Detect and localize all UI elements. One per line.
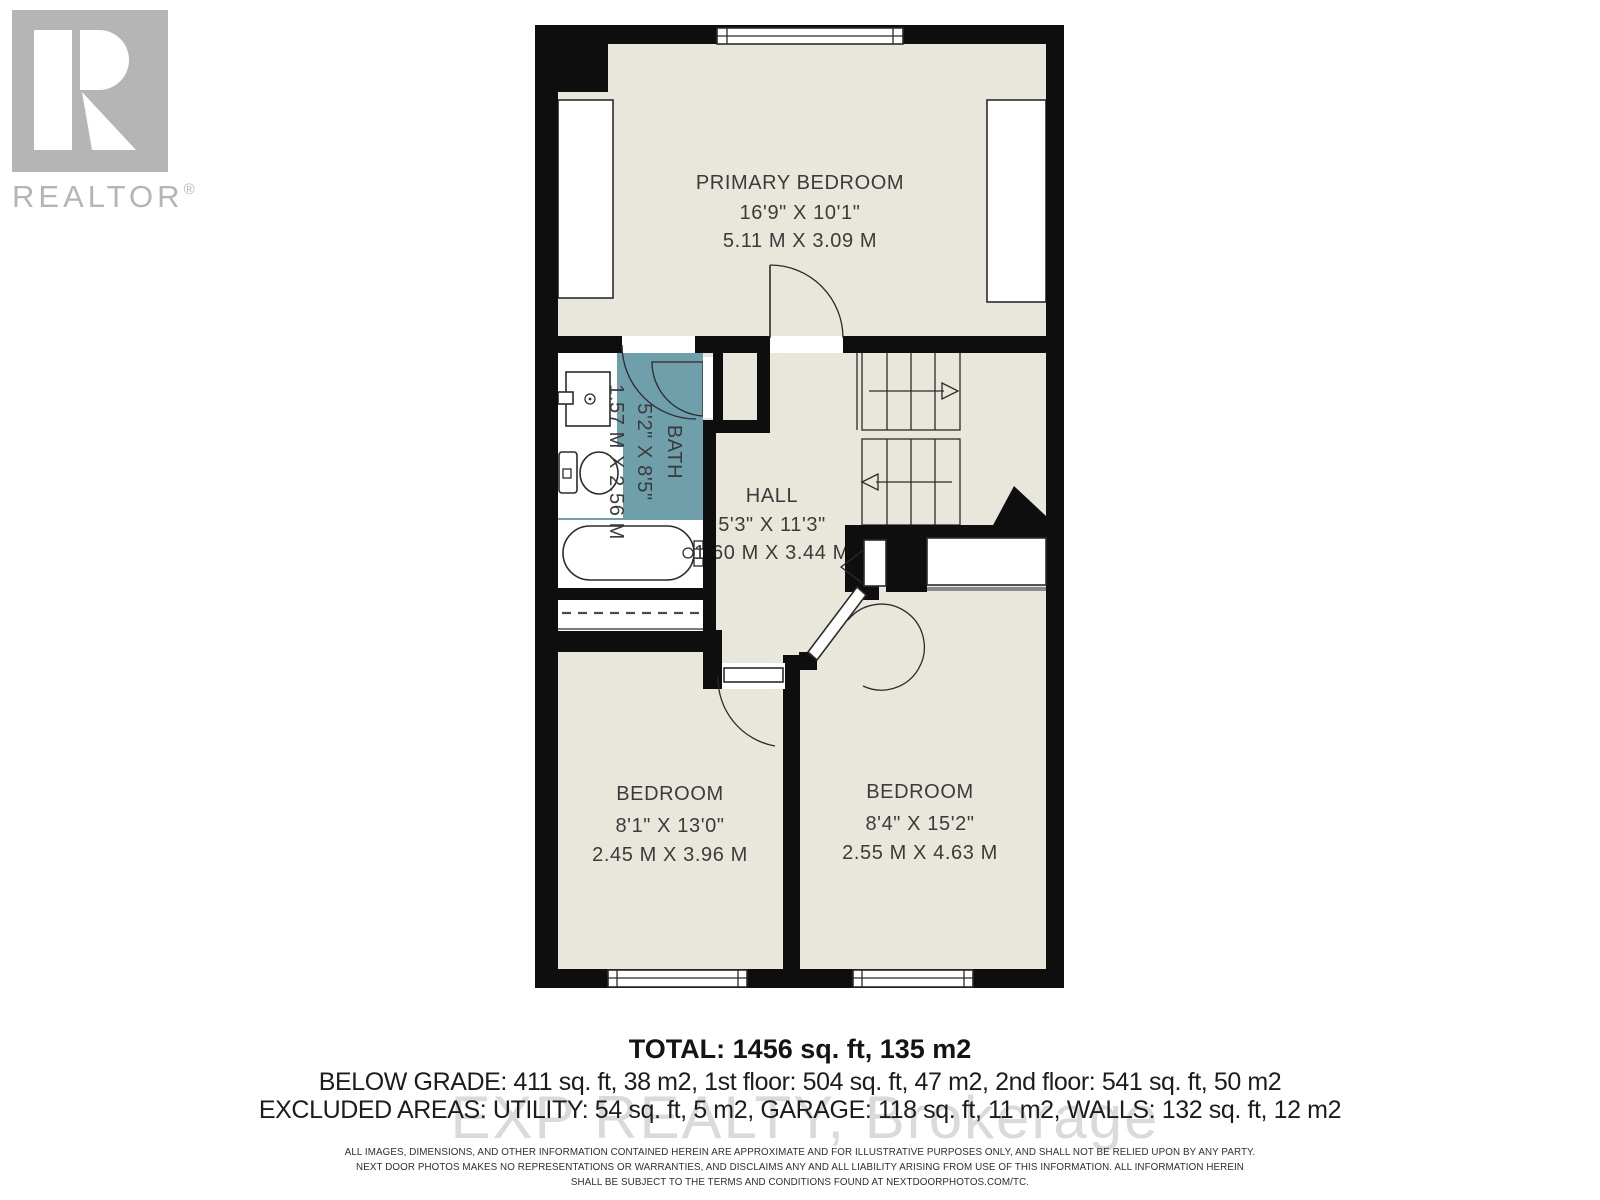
linen-closet-small [864, 540, 886, 586]
bedroom-left-imperial: 8'1" X 13'0" [615, 815, 724, 837]
wall-below-tub [558, 588, 703, 600]
bath-metric: 1.57 M X 2.56 M [605, 384, 627, 540]
wall-hall-left [703, 430, 716, 655]
area-summary: EXP REALTY, Brokerage TOTAL: 1456 sq. ft… [259, 1034, 1341, 1151]
bedroom-right-label: BEDROOM [866, 781, 974, 803]
excluded-areas-text: EXCLUDED AREAS: UTILITY: 54 sq. ft, 5 m2… [259, 1096, 1341, 1124]
bedroom-left-closet [558, 600, 703, 631]
bedroom-right-imperial: 8'4" X 15'2" [865, 813, 974, 835]
floorplan-image: REALTOR® [0, 0, 1600, 1200]
realtor-logo-r-stem [34, 30, 72, 150]
below-grade-text: BELOW GRADE: 411 sq. ft, 38 m2, 1st floo… [319, 1068, 1282, 1096]
primary-closet-right [987, 100, 1046, 302]
bedroom-left-floor [558, 652, 783, 973]
floorplan-page: REALTOR® [0, 0, 1600, 1200]
wall-niche-left [713, 353, 723, 420]
bedroom-left-door-leaf [724, 668, 783, 682]
disclaimer-line-1: ALL IMAGES, DIMENSIONS, AND OTHER INFORM… [345, 1147, 1256, 1158]
disclaimer: ALL IMAGES, DIMENSIONS, AND OTHER INFORM… [345, 1147, 1256, 1188]
bath-side-opening [703, 357, 713, 418]
disclaimer-line-2: NEXT DOOR PHOTOS MAKES NO REPRESENTATION… [356, 1162, 1244, 1173]
disclaimer-line-3: SHALL BE SUBJECT TO THE TERMS AND CONDIT… [571, 1177, 1029, 1188]
hall-metric: 1.60 M X 3.44 M [694, 542, 850, 564]
primary-bedroom-metric: 5.11 M X 3.09 M [723, 230, 877, 252]
window-top [717, 28, 903, 44]
wall-right [1046, 25, 1064, 988]
wall-bedroom-divider [783, 655, 800, 973]
bath-label: BATH [663, 425, 685, 479]
wall-niche-right [757, 336, 770, 433]
total-area-text: TOTAL: 1456 sq. ft, 135 m2 [629, 1034, 972, 1064]
primary-bedroom-imperial: 16'9" X 10'1" [740, 202, 861, 224]
sink-drain-dot [589, 398, 592, 401]
window-bottom-right [853, 970, 973, 987]
primary-bedroom-label: PRIMARY BEDROOM [696, 172, 904, 194]
realtor-logo: REALTOR® [12, 10, 195, 214]
bedroom-left-label: BEDROOM [616, 783, 724, 805]
realtor-logo-text: REALTOR® [12, 179, 195, 214]
primary-door-opening [770, 336, 843, 353]
hall-imperial: 5'3" X 11'3" [718, 514, 826, 536]
bathtub-icon [563, 526, 694, 580]
wall-closet-bottom [558, 631, 710, 652]
bedroom-right-metric: 2.55 M X 4.63 M [842, 842, 998, 864]
wall-corner-chunk [535, 25, 608, 92]
toilet-tank-icon [559, 452, 577, 493]
window-bottom-left [608, 970, 747, 987]
wall-door-jamb-left [703, 630, 722, 689]
bedroom-right-closet [927, 538, 1046, 585]
primary-closet-left [558, 100, 613, 298]
bedroom-left-metric: 2.45 M X 3.96 M [592, 844, 748, 866]
hall-label: HALL [746, 485, 798, 507]
bath-imperial: 5'2" X 8'5" [633, 403, 655, 500]
bath-door-opening [622, 336, 695, 353]
wall-left [535, 25, 558, 988]
wall-closet-row-mid [886, 525, 927, 592]
vanity-knob-icon [558, 392, 573, 404]
